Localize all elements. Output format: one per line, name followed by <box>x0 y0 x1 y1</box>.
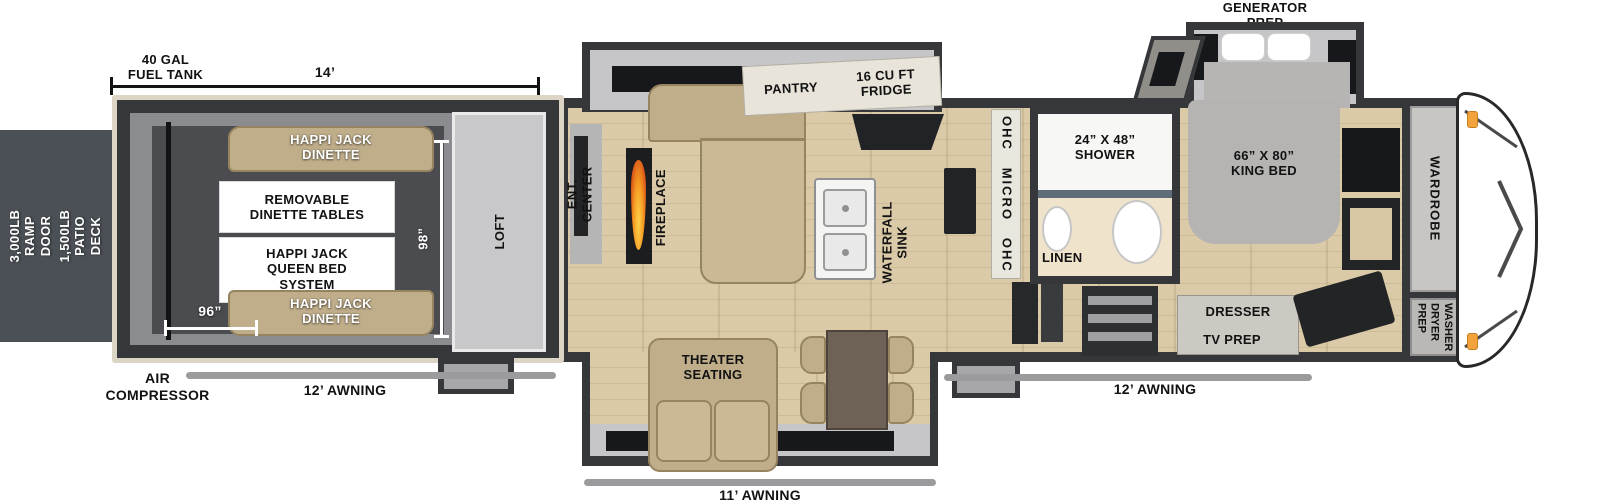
kitchen-island <box>814 178 876 280</box>
awning-bar-right <box>944 374 1312 381</box>
sink-bowl-top <box>823 189 867 227</box>
washer-dryer-prep-label: WASHER DRYER PREP <box>1410 298 1458 356</box>
happi-jack-dinette-top-label: HAPPI JACK DINETTE <box>228 132 434 163</box>
sink-bowl-bottom <box>823 233 867 271</box>
tv-prep-label: TV PREP <box>1172 332 1292 347</box>
awning-bar-mid <box>584 479 936 486</box>
theater-seating-label: THEATER SEATING <box>648 352 778 383</box>
bedroom-window-upper <box>1342 128 1400 192</box>
awning-left-label: 12’ AWNING <box>255 382 435 399</box>
linen-label: LINEN <box>1036 250 1112 265</box>
ohc-micro-label: OHC MICRO OHC <box>992 110 1020 278</box>
bedroom-cabinet-right <box>1342 198 1400 270</box>
bedroom-steps <box>1082 286 1158 356</box>
theater-seat-cushion-right <box>714 400 770 462</box>
shower-glass <box>1038 190 1172 198</box>
pantry-fridge-cabinet: PANTRY 16 CU FT FRIDGE <box>743 57 941 115</box>
length-dimension-tick-right <box>537 77 540 95</box>
front-cap <box>1456 92 1538 368</box>
range-hood <box>852 114 944 150</box>
awning-right-label: 12’ AWNING <box>1055 381 1255 398</box>
dinette-chair-1 <box>800 336 826 374</box>
fuel-tank-label: 40 GAL FUEL TANK <box>103 52 228 83</box>
garage-height-label: 98” <box>412 208 434 270</box>
cap-marker-light-bottom <box>1467 333 1478 350</box>
pantry-label: PANTRY <box>748 78 835 98</box>
length-dimension-tick-left <box>110 77 113 95</box>
awning-bar-left <box>186 372 556 379</box>
waterfall-sink-label: WATERFALL SINK <box>874 182 916 302</box>
kitchen-cabinet-low-1 <box>1012 282 1038 344</box>
rv-floorplan: GENERATOR PREP 40 GAL FUEL TANK 14’ 3,00… <box>0 0 1600 504</box>
cap-marker-light-top <box>1467 111 1478 128</box>
toilet <box>1042 206 1072 252</box>
happi-jack-queen-bed-label: HAPPI JACK QUEEN BED SYSTEM <box>220 246 394 292</box>
patio-deck-label: 1,500LB PATIO DECK <box>52 130 108 342</box>
sofa-seam <box>700 138 806 141</box>
fireplace-label: FIREPLACE <box>650 150 672 265</box>
bath-sink <box>1112 200 1162 264</box>
air-compressor-label: AIR COMPRESSOR <box>95 370 220 403</box>
ramp-door-patio-panel: 3,000LB RAMP DOOR 1,500LB PATIO DECK <box>0 130 113 342</box>
garage-width-tick-right <box>255 320 258 336</box>
king-bed-label: 66” X 80” KING BED <box>1188 148 1340 179</box>
dinette-chair-4 <box>888 382 914 424</box>
garage-height-line <box>440 140 443 338</box>
dinette-chair-3 <box>888 336 914 374</box>
garage-height-tick-bottom <box>434 335 449 338</box>
bed-pillow-right <box>1268 34 1310 60</box>
awning-mid-label: 11’ AWNING <box>665 487 855 504</box>
dresser-label: DRESSER <box>1178 304 1298 319</box>
happi-jack-dinette-bottom-label: HAPPI JACK DINETTE <box>228 296 434 327</box>
dinette-table <box>826 330 888 430</box>
bed-pillow-left <box>1222 34 1264 60</box>
shower-label: 24” X 48” SHOWER <box>1038 132 1172 163</box>
theater-seat-cushion-left <box>656 400 712 462</box>
kitchen-cabinet-low-2 <box>1041 284 1063 342</box>
dinette-chair-2 <box>800 382 826 424</box>
garage-height-tick-top <box>434 140 449 143</box>
front-cap-graphics <box>1459 95 1535 365</box>
garage-width-line <box>164 327 258 330</box>
sectional-sofa-chaise <box>700 138 806 284</box>
removable-dinette-tables-label: REMOVABLE DINETTE TABLES <box>220 192 394 223</box>
fridge-label: 16 CU FT FRIDGE <box>835 65 936 101</box>
length-dimension-line <box>110 85 540 88</box>
length-dimension-label: 14’ <box>295 64 355 81</box>
loft-label: LOFT <box>470 140 530 324</box>
garage-width-tick-left <box>164 320 167 336</box>
garage-width-label: 96” <box>170 303 250 320</box>
ent-center-label: ENT. CENTER <box>570 134 590 254</box>
wardrobe-label: WARDROBE <box>1410 106 1458 292</box>
cooktop <box>944 168 976 234</box>
ramp-door-label: 3,000LB RAMP DOOR <box>2 130 58 342</box>
